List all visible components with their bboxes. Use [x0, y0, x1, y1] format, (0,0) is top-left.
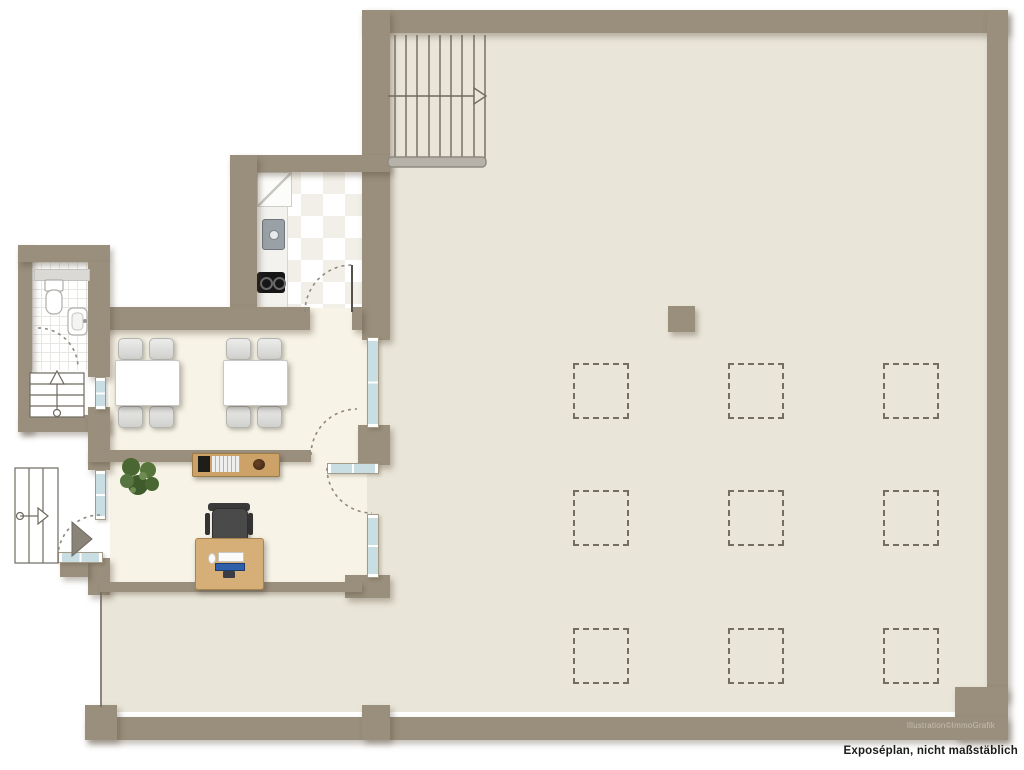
washbasin: [68, 308, 87, 335]
staircase-bath-landing: [30, 371, 84, 417]
plan-linework: [0, 0, 1024, 770]
caption: Exposéplan, nicht maßstäblich: [843, 745, 1018, 757]
plant: [120, 458, 159, 495]
books-dark: [198, 456, 210, 472]
watermark: Illustration©ImmoGrafik: [907, 721, 995, 730]
keyboard: [218, 552, 244, 562]
bowl: [253, 459, 265, 470]
sideboard: [192, 453, 280, 477]
office-hall-door-arc: [327, 468, 372, 513]
kitchen-door-arc: [305, 265, 352, 312]
staircase-main: [388, 35, 486, 167]
toilet: [45, 280, 63, 314]
entrance-door-leaf: [72, 522, 92, 556]
pc-unit: [223, 571, 235, 578]
door-swing-arcs: [38, 265, 372, 557]
dining-office-door-arc: [311, 409, 357, 455]
monitor: [215, 563, 245, 571]
floorplan-canvas: Illustration©ImmoGrafik Exposéplan, nich…: [0, 0, 1024, 770]
desk: [195, 538, 264, 590]
staircase-side: [15, 468, 58, 563]
book-row: [212, 456, 240, 472]
